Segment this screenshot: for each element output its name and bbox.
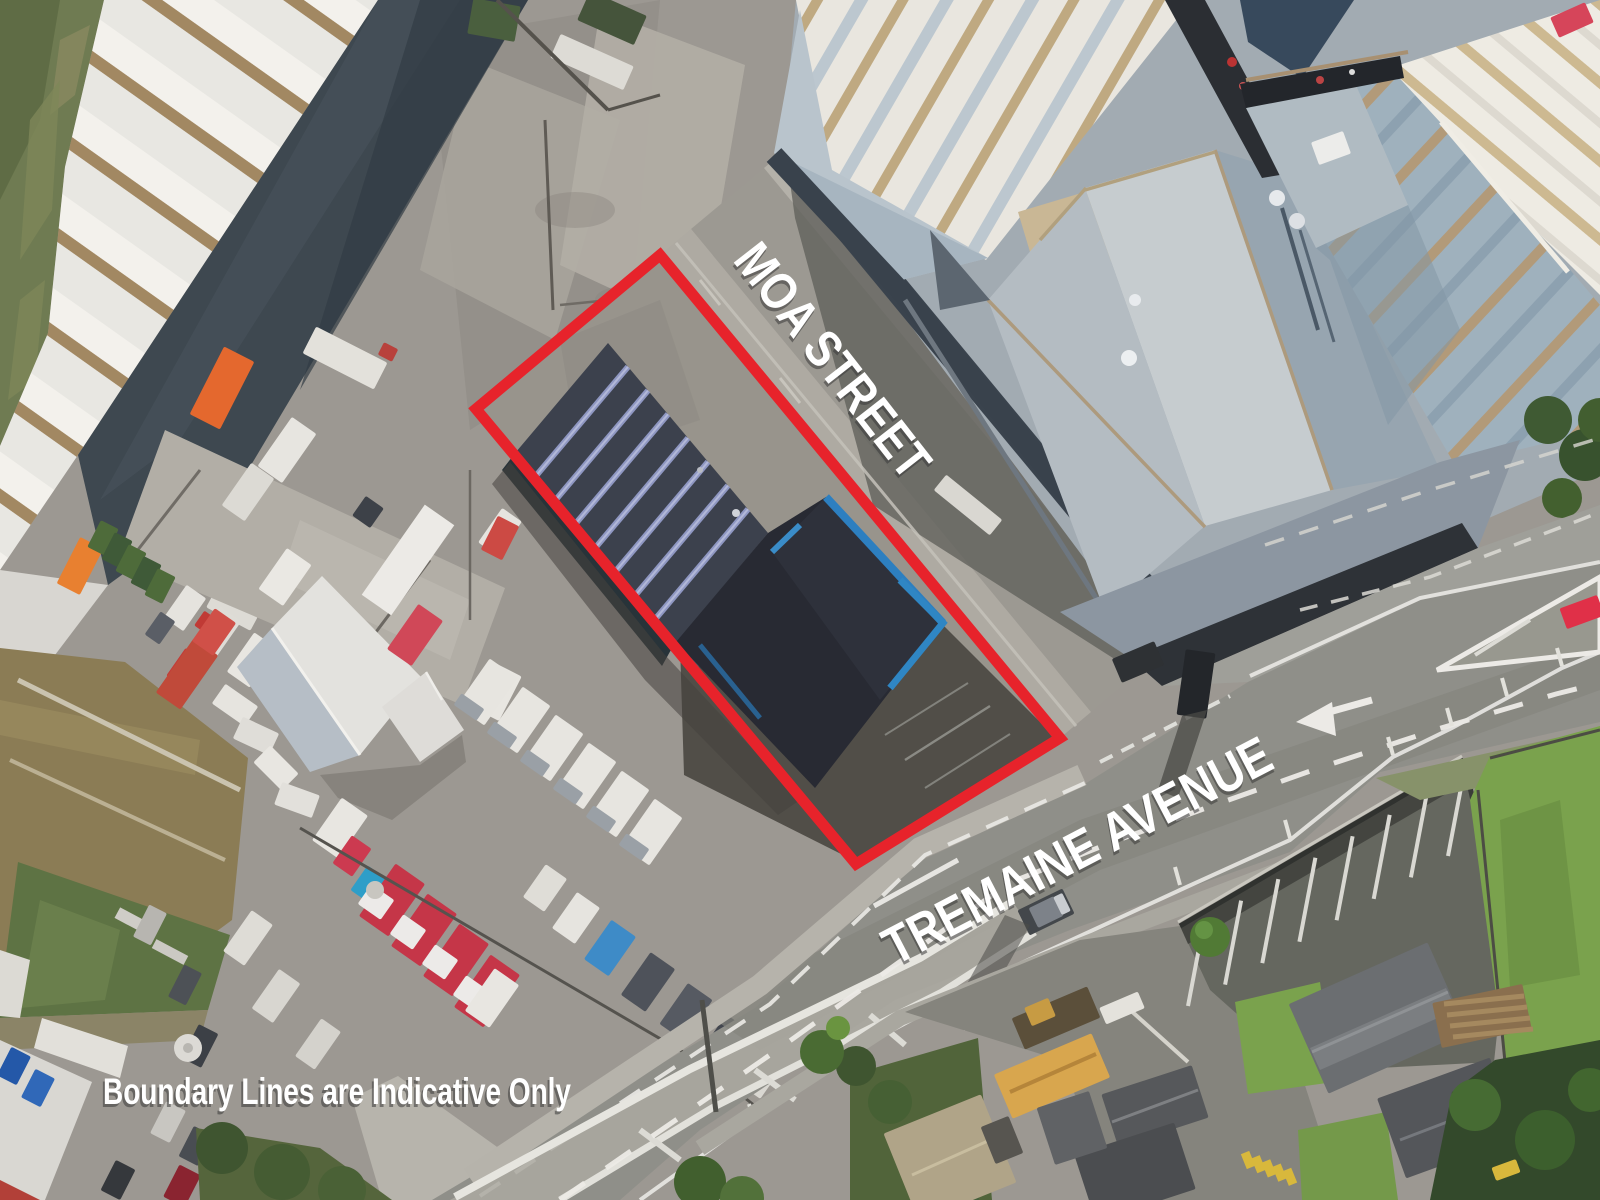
svg-text:Boundary Lines are Indicative: Boundary Lines are Indicative Only [103, 1071, 571, 1112]
